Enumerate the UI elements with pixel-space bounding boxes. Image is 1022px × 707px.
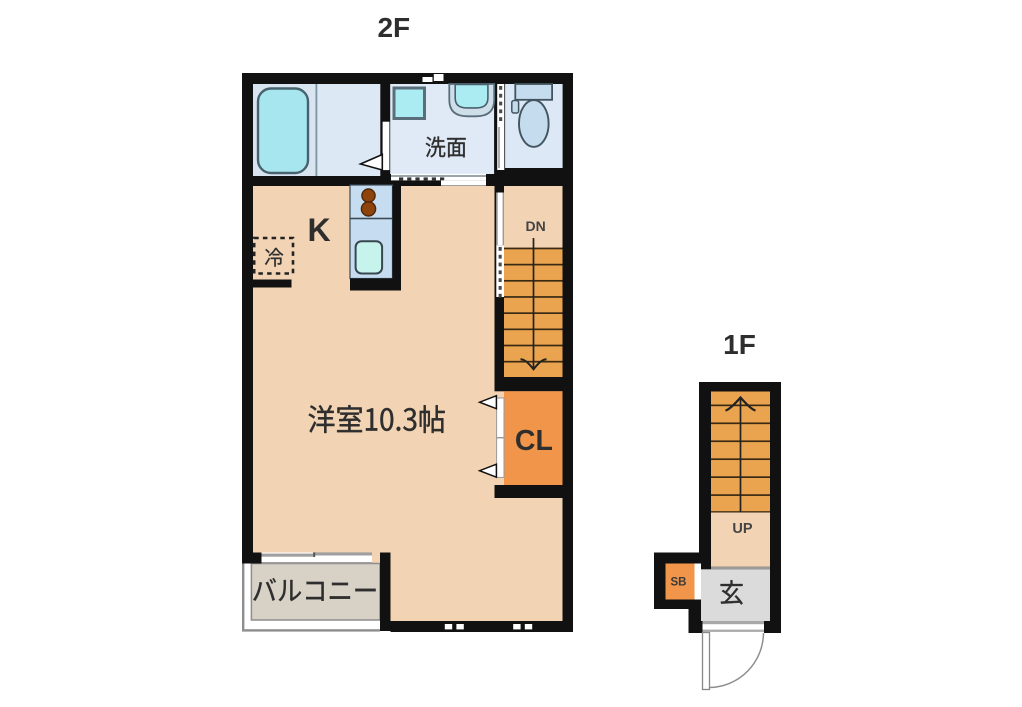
svg-text:1F: 1F <box>723 329 756 360</box>
svg-text:UP: UP <box>732 521 752 537</box>
svg-text:DN: DN <box>525 218 545 234</box>
svg-text:2F: 2F <box>377 12 410 43</box>
svg-text:CL: CL <box>515 425 553 457</box>
svg-text:K: K <box>307 212 330 248</box>
svg-text:SB: SB <box>671 577 687 589</box>
